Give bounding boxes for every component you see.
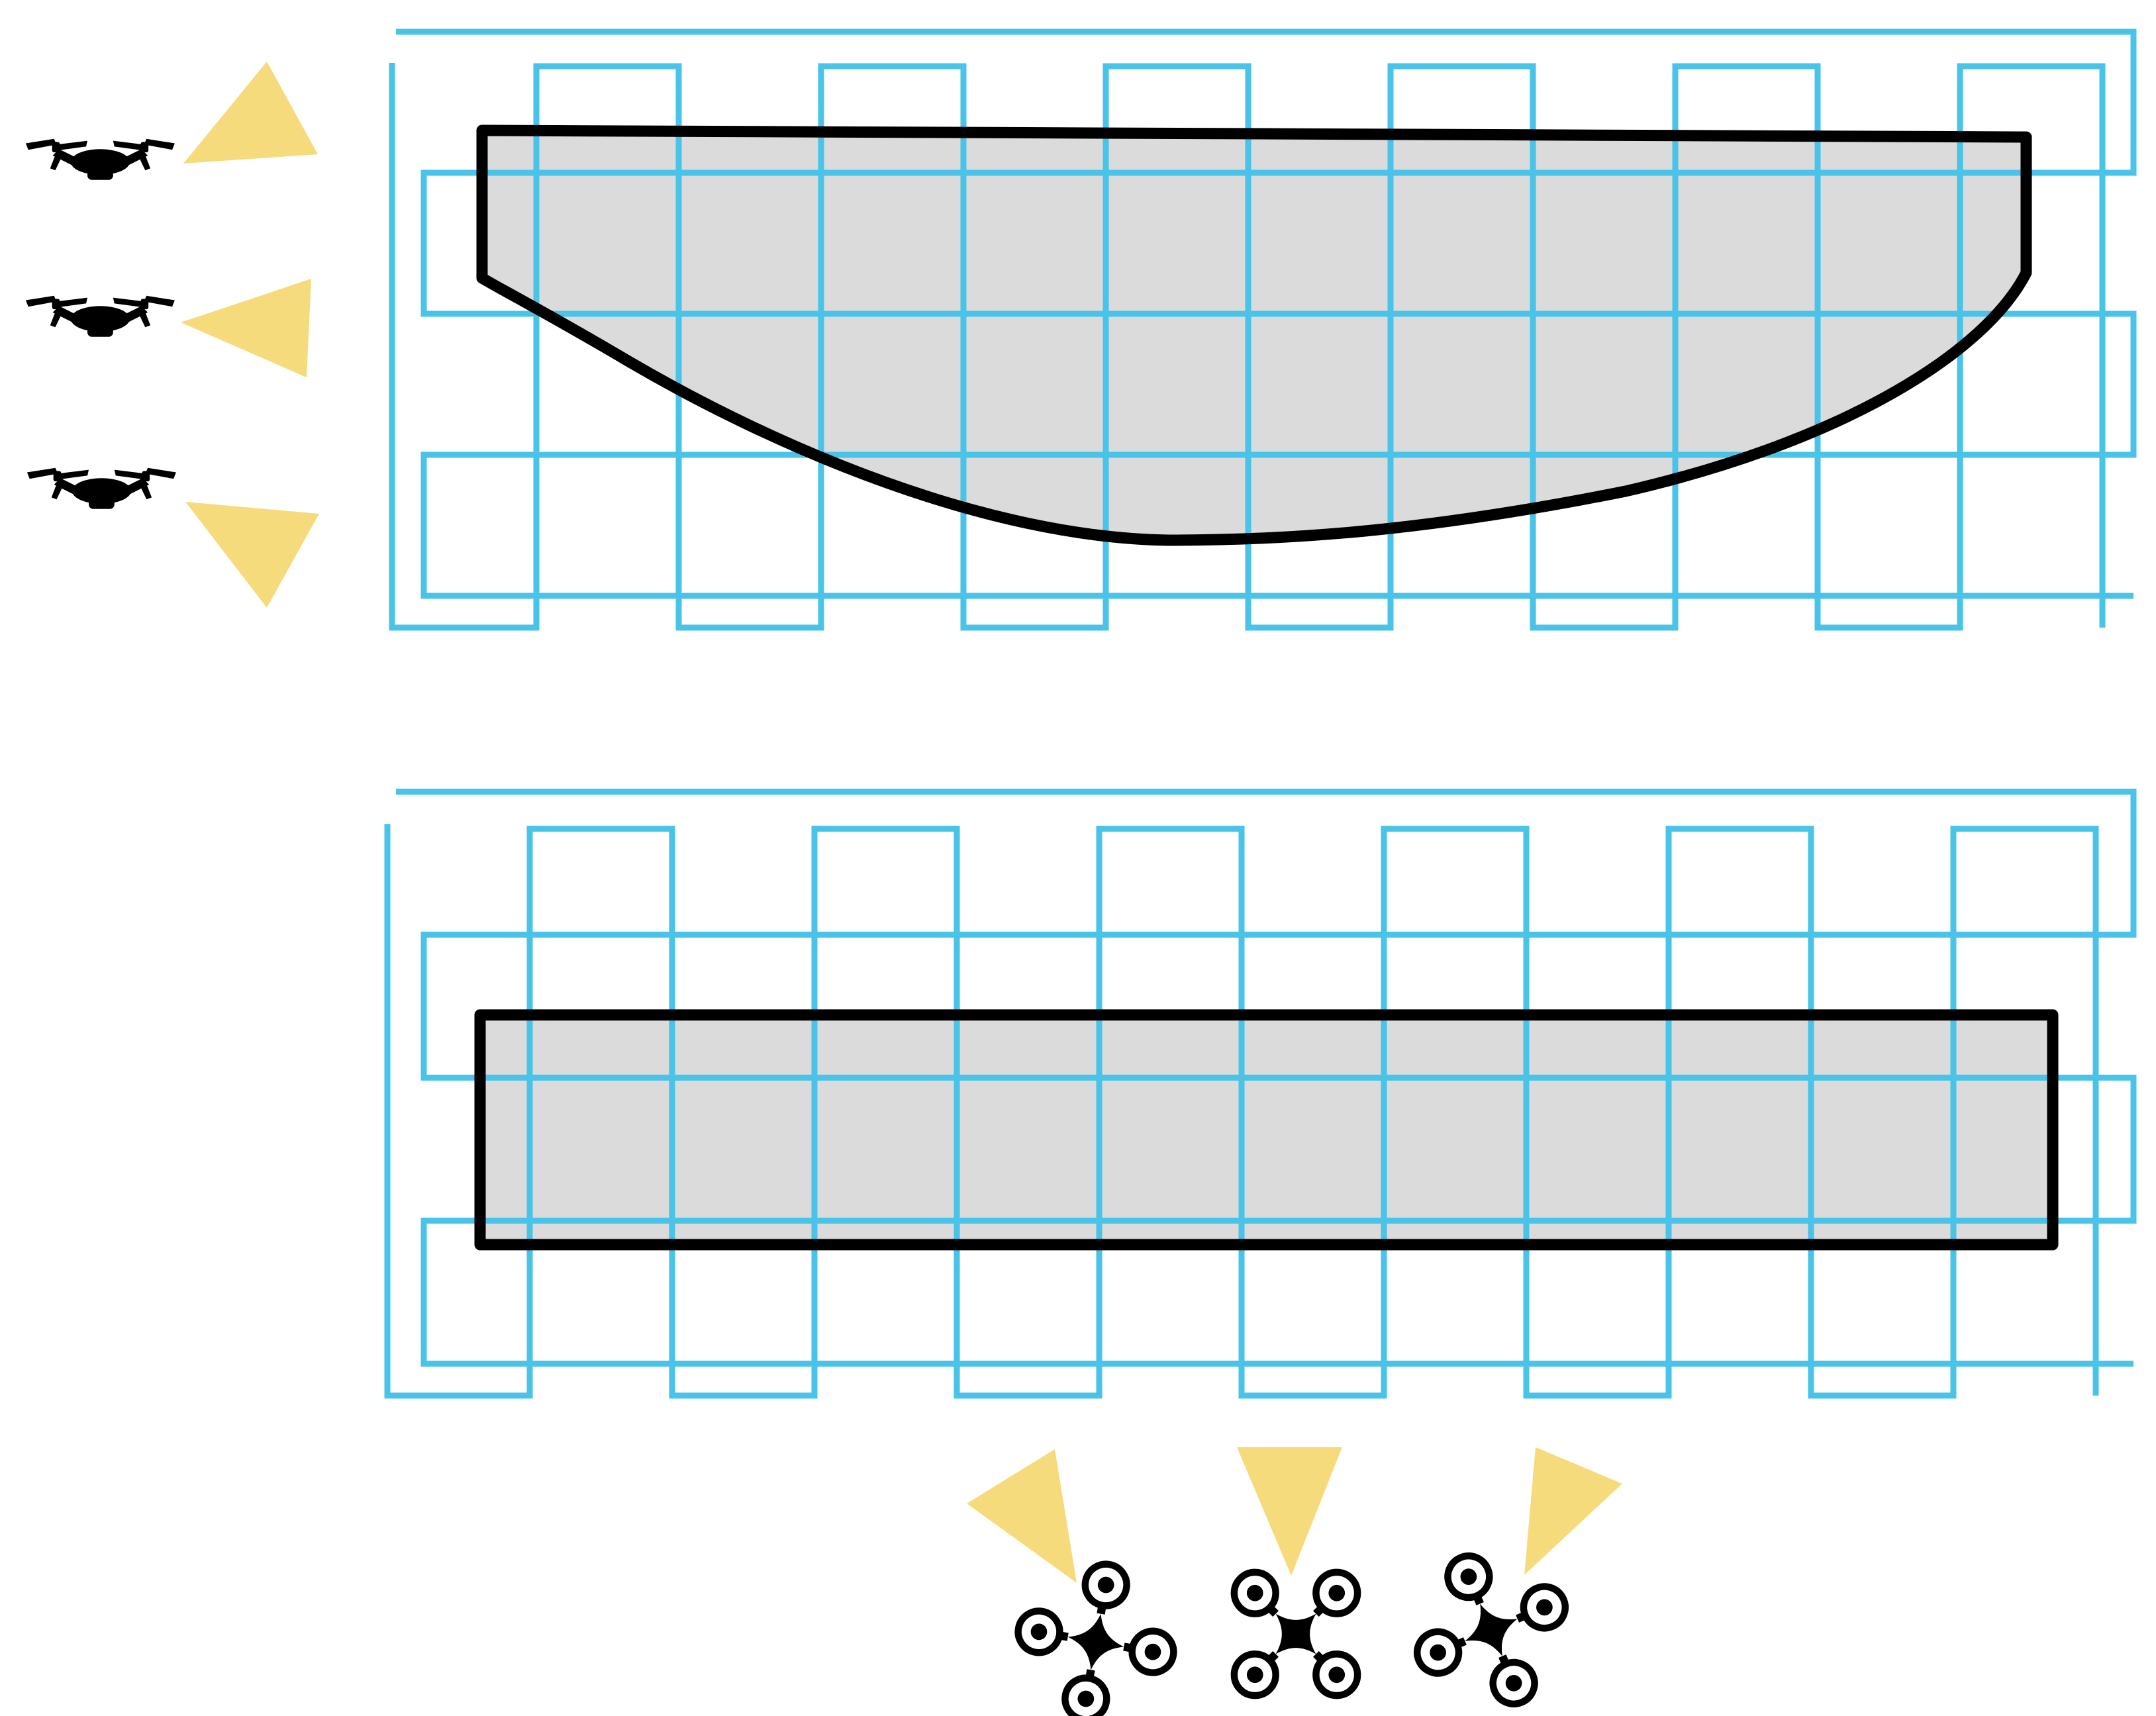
side-view-drone-icon	[27, 468, 176, 509]
side-view-drone-icon	[26, 139, 175, 180]
diagram-canvas	[0, 0, 2156, 1716]
light-cone-up-right	[1524, 1447, 1622, 1575]
curved-survey-area-fill	[482, 130, 2026, 540]
side-view-drone-icon	[26, 296, 175, 337]
rectangular-survey-area-scan-rows-path	[396, 792, 2133, 1364]
light-cone-down-right	[185, 502, 319, 608]
light-cone-up-right	[183, 62, 318, 164]
drone-coverage-diagram	[0, 0, 2156, 1716]
light-cone-right	[181, 279, 311, 377]
light-cone-up	[1237, 1447, 1342, 1576]
top-view-quadcopter-icon	[1234, 1572, 1357, 1695]
light-cone-up-left	[967, 1449, 1077, 1583]
top-view-quadcopter-icon	[1411, 1550, 1571, 1710]
rectangular-survey-area-fill	[480, 1015, 2053, 1245]
top-view-quadcopter-icon	[1010, 1556, 1181, 1716]
